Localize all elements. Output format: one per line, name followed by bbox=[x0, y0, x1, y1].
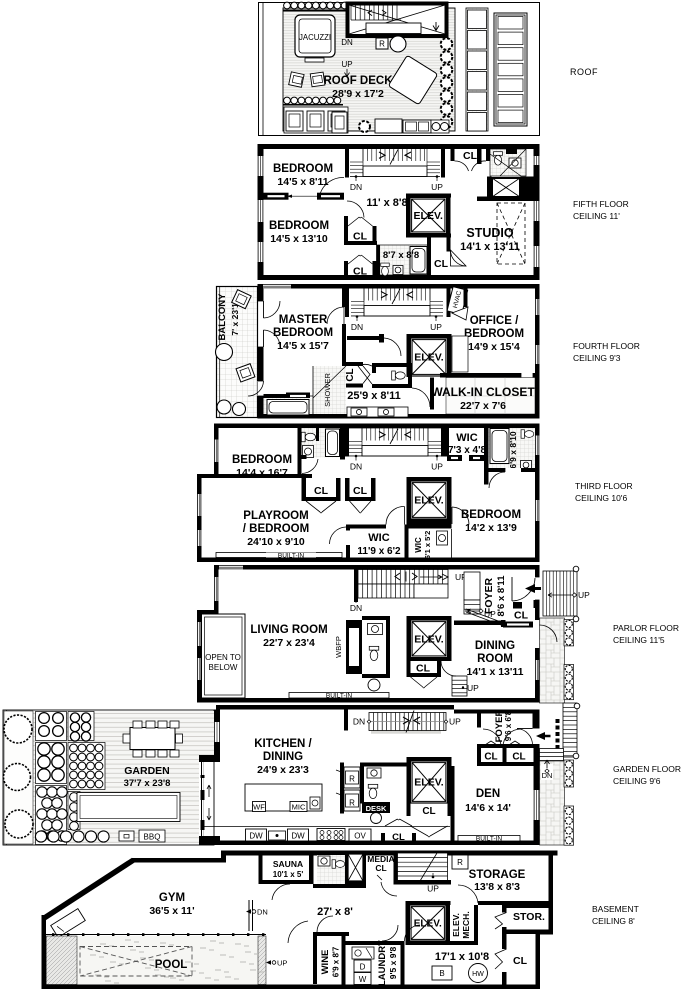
svg-text:CL: CL bbox=[353, 485, 368, 497]
svg-text:14'9 x 15'4: 14'9 x 15'4 bbox=[468, 341, 520, 353]
svg-text:CEILING 8': CEILING 8' bbox=[592, 916, 635, 926]
svg-text:STUDIO: STUDIO bbox=[466, 226, 514, 240]
svg-text:11'9 x 6'2: 11'9 x 6'2 bbox=[357, 546, 401, 557]
svg-text:UP: UP bbox=[341, 60, 352, 69]
svg-text:24'9 x 23'3: 24'9 x 23'3 bbox=[257, 764, 309, 776]
svg-text:GYM: GYM bbox=[159, 892, 185, 904]
svg-text:POOL: POOL bbox=[155, 959, 188, 971]
svg-text:8'6 x 8'11: 8'6 x 8'11 bbox=[496, 575, 507, 617]
svg-text:DW: DW bbox=[249, 832, 263, 841]
svg-text:CL: CL bbox=[353, 266, 368, 278]
svg-text:ROOF DECK: ROOF DECK bbox=[324, 75, 394, 87]
svg-text:R: R bbox=[349, 799, 355, 808]
svg-text:OPEN TO: OPEN TO bbox=[205, 653, 241, 662]
svg-text:OFFICE /: OFFICE / bbox=[470, 315, 519, 327]
svg-text:SHOWER: SHOWER bbox=[323, 373, 332, 407]
svg-text:ROOF: ROOF bbox=[570, 67, 598, 77]
svg-text:CL: CL bbox=[434, 258, 449, 270]
svg-text:8'7 x 8'8: 8'7 x 8'8 bbox=[383, 250, 419, 261]
svg-text:7'3 x 4'8: 7'3 x 4'8 bbox=[448, 445, 487, 456]
svg-text:FIFTH FLOOR: FIFTH FLOOR bbox=[573, 199, 629, 209]
svg-text:CL: CL bbox=[353, 231, 368, 243]
svg-text:11' x 8'8: 11' x 8'8 bbox=[366, 197, 407, 209]
svg-text:GARDEN: GARDEN bbox=[124, 765, 170, 777]
svg-text:ELEV.: ELEV. bbox=[451, 913, 461, 937]
svg-text:ELEV.: ELEV. bbox=[414, 777, 443, 789]
svg-text:MECH.: MECH. bbox=[461, 911, 471, 938]
svg-text:13'8 x 8'3: 13'8 x 8'3 bbox=[474, 881, 520, 893]
svg-text:W: W bbox=[359, 975, 367, 984]
svg-text:D: D bbox=[360, 963, 366, 972]
svg-text:17'1 x 10'8: 17'1 x 10'8 bbox=[435, 951, 489, 963]
svg-text:ROOM: ROOM bbox=[477, 653, 513, 665]
svg-text:R: R bbox=[379, 40, 385, 49]
svg-text:KITCHEN /: KITCHEN / bbox=[254, 738, 312, 750]
svg-text:FOYER: FOYER bbox=[483, 577, 495, 614]
svg-text:STORAGE: STORAGE bbox=[469, 869, 526, 881]
svg-text:22'7 x 23'4: 22'7 x 23'4 bbox=[263, 637, 315, 649]
svg-text:BEDROOM: BEDROOM bbox=[273, 327, 333, 339]
svg-text:HW: HW bbox=[472, 971, 484, 978]
svg-text:WIC: WIC bbox=[368, 532, 389, 544]
svg-text:DN: DN bbox=[257, 908, 268, 917]
svg-text:WIC: WIC bbox=[414, 537, 423, 553]
svg-text:DN: DN bbox=[351, 322, 363, 332]
svg-text:R: R bbox=[349, 775, 355, 784]
svg-text:/ BEDROOM: / BEDROOM bbox=[243, 523, 309, 535]
svg-text:CL: CL bbox=[422, 806, 435, 817]
svg-text:CEILING 11'5: CEILING 11'5 bbox=[613, 635, 665, 645]
svg-text:UP: UP bbox=[277, 959, 287, 968]
svg-text:CL: CL bbox=[513, 955, 528, 967]
svg-text:UP: UP bbox=[449, 717, 461, 727]
svg-text:B: B bbox=[439, 969, 444, 978]
svg-text:14'6 x 14': 14'6 x 14' bbox=[465, 802, 511, 814]
svg-text:CL: CL bbox=[512, 752, 525, 763]
svg-text:PLAYROOM: PLAYROOM bbox=[243, 510, 308, 522]
svg-text:14'1 x 13'11: 14'1 x 13'11 bbox=[460, 241, 520, 253]
svg-text:14'5 x 13'10: 14'5 x 13'10 bbox=[270, 233, 328, 245]
svg-text:6'9 x 8'7: 6'9 x 8'7 bbox=[332, 946, 341, 977]
svg-text:LAUNDRY: LAUNDRY bbox=[377, 939, 388, 986]
svg-text:DINING: DINING bbox=[263, 751, 303, 763]
svg-text:BUILT-IN: BUILT-IN bbox=[326, 693, 353, 700]
svg-text:14'5 x 8'11: 14'5 x 8'11 bbox=[277, 176, 328, 188]
svg-text:DN: DN bbox=[350, 462, 362, 472]
svg-text:UP: UP bbox=[427, 884, 439, 894]
svg-text:ELEV.: ELEV. bbox=[414, 633, 443, 645]
svg-text:JACUZZI: JACUZZI bbox=[299, 33, 331, 42]
svg-text:CL: CL bbox=[345, 368, 356, 381]
svg-text:ELEV.: ELEV. bbox=[414, 352, 443, 364]
svg-text:CL: CL bbox=[463, 150, 478, 162]
svg-text:CEILING 10'6: CEILING 10'6 bbox=[575, 493, 627, 503]
svg-text:CL: CL bbox=[514, 610, 529, 622]
svg-text:27' x 8': 27' x 8' bbox=[317, 906, 353, 918]
svg-text:DESK: DESK bbox=[366, 804, 387, 813]
svg-text:9'6 x 6'8: 9'6 x 6'8 bbox=[504, 710, 513, 741]
svg-text:R: R bbox=[457, 858, 463, 867]
svg-text:WALK-IN CLOSET: WALK-IN CLOSET bbox=[431, 385, 535, 399]
svg-text:BUILT-IN: BUILT-IN bbox=[476, 836, 503, 843]
svg-text:BUILT-IN: BUILT-IN bbox=[278, 552, 305, 559]
svg-text:CEILING 9'6: CEILING 9'6 bbox=[613, 776, 661, 786]
svg-text:MASTER: MASTER bbox=[279, 314, 328, 326]
svg-text:THIRD FLOOR: THIRD FLOOR bbox=[575, 481, 633, 491]
svg-text:36'5 x 11': 36'5 x 11' bbox=[149, 905, 194, 917]
svg-text:OV: OV bbox=[354, 832, 366, 841]
svg-text:BALCONY: BALCONY bbox=[217, 293, 228, 341]
svg-text:FOURTH FLOOR: FOURTH FLOOR bbox=[573, 341, 640, 351]
svg-text:PARLOR FLOOR: PARLOR FLOOR bbox=[613, 623, 679, 633]
svg-text:14'2 x 13'9: 14'2 x 13'9 bbox=[465, 522, 517, 534]
svg-text:BEDROOM: BEDROOM bbox=[464, 328, 524, 340]
svg-text:UP: UP bbox=[467, 683, 479, 693]
svg-text:UP: UP bbox=[430, 322, 442, 332]
svg-text:ELEV.: ELEV. bbox=[414, 495, 443, 507]
svg-text:BEDROOM: BEDROOM bbox=[269, 220, 329, 232]
svg-text:WINE: WINE bbox=[320, 950, 331, 975]
svg-text:DN: DN bbox=[353, 717, 365, 727]
svg-text:10'1 x 5': 10'1 x 5' bbox=[273, 870, 304, 879]
svg-text:CL: CL bbox=[416, 663, 431, 675]
svg-text:BEDROOM: BEDROOM bbox=[273, 163, 333, 175]
svg-text:SAUNA: SAUNA bbox=[273, 859, 303, 869]
svg-text:CEILING 11': CEILING 11' bbox=[573, 211, 620, 221]
svg-text:CL: CL bbox=[314, 485, 329, 497]
svg-text:BEDROOM: BEDROOM bbox=[461, 509, 521, 521]
svg-text:ELEV.: ELEV. bbox=[414, 210, 443, 222]
svg-text:BELOW: BELOW bbox=[209, 663, 238, 672]
svg-text:CEILING 9'3: CEILING 9'3 bbox=[573, 353, 621, 363]
svg-text:DINING: DINING bbox=[475, 640, 515, 652]
svg-text:14'5 x 15'7: 14'5 x 15'7 bbox=[277, 340, 329, 352]
svg-text:ELEV.: ELEV. bbox=[414, 919, 442, 930]
svg-text:UP: UP bbox=[431, 462, 443, 472]
svg-text:DN: DN bbox=[350, 182, 362, 192]
svg-text:GARDEN FLOOR: GARDEN FLOOR bbox=[613, 764, 681, 774]
svg-text:37'7 x 23'8: 37'7 x 23'8 bbox=[124, 778, 171, 789]
svg-text:24'10 x 9'10: 24'10 x 9'10 bbox=[247, 536, 305, 548]
svg-text:6'9 x 8'10: 6'9 x 8'10 bbox=[508, 431, 518, 468]
svg-text:BEDROOM: BEDROOM bbox=[232, 454, 292, 466]
svg-text:DEN: DEN bbox=[476, 788, 500, 800]
svg-text:UP: UP bbox=[431, 182, 443, 192]
svg-text:WBFP: WBFP bbox=[334, 636, 343, 658]
svg-text:STOR.: STOR. bbox=[513, 911, 545, 923]
svg-text:WIC: WIC bbox=[456, 432, 477, 444]
svg-text:CL: CL bbox=[375, 863, 386, 873]
svg-text:CL: CL bbox=[392, 832, 405, 843]
svg-text:25'9 x 8'11: 25'9 x 8'11 bbox=[347, 390, 401, 402]
svg-text:14'1 x 13'11: 14'1 x 13'11 bbox=[467, 666, 524, 678]
svg-text:MIC: MIC bbox=[292, 803, 306, 812]
svg-text:WF: WF bbox=[253, 803, 265, 812]
svg-text:DW: DW bbox=[291, 832, 305, 841]
svg-text:BBQ: BBQ bbox=[144, 833, 161, 842]
svg-text:22'7 x 7'6: 22'7 x 7'6 bbox=[460, 400, 506, 412]
svg-text:DN: DN bbox=[341, 38, 353, 47]
svg-text:6'1 x 5'2: 6'1 x 5'2 bbox=[423, 531, 432, 560]
svg-text:CL: CL bbox=[484, 752, 497, 763]
svg-text:9'5 x 9'8: 9'5 x 9'8 bbox=[388, 947, 398, 980]
svg-text:UP: UP bbox=[578, 590, 590, 600]
svg-text:DN: DN bbox=[350, 603, 362, 613]
svg-text:LIVING ROOM: LIVING ROOM bbox=[250, 624, 327, 636]
svg-text:BASEMENT: BASEMENT bbox=[592, 904, 639, 914]
